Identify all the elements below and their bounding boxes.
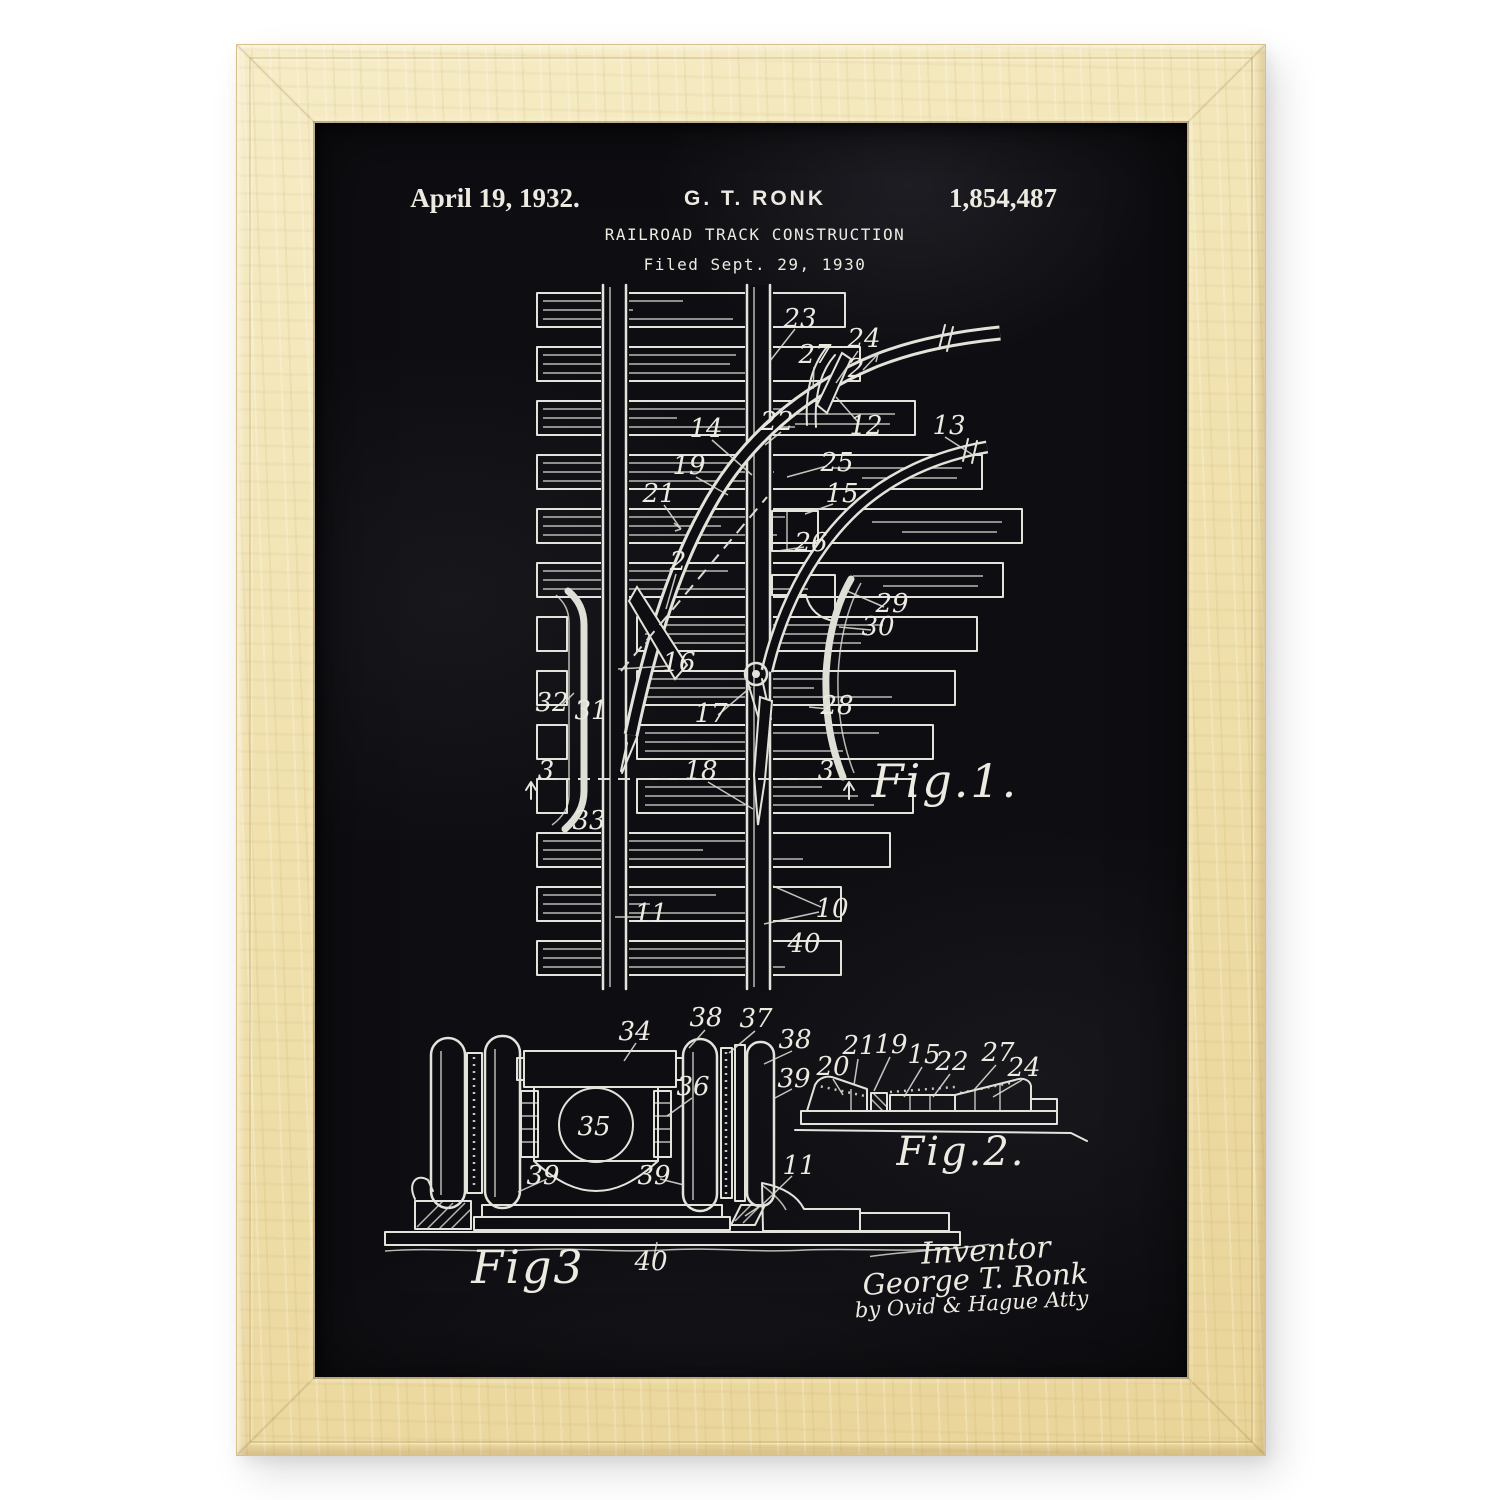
frame-miter-top-right [1187,45,1265,123]
patent-date: April 19, 1932. [410,183,580,213]
fig1-part-label: 2 [847,354,865,384]
fig1-part-label: 24 [846,324,880,354]
fig1-part-label: 2 [669,547,687,577]
fig1-part-label: 10 [815,894,848,924]
fig2-part-label: 19 [874,1030,907,1060]
fig3-part-label: 35 [577,1112,610,1142]
fig1-part-label: 27 [797,340,832,370]
signature-block: Inventor George T. Ronk by Ovid & Hague … [851,1228,1090,1322]
fig1-part-label: 28 [819,691,853,721]
fig3-part-label: 39 [526,1161,559,1191]
fig2-part-labels: 20211915222724 [815,1030,1040,1083]
filed-date: Filed Sept. 29, 1930 [644,255,867,274]
fig1-part-label: 40 [786,929,820,959]
fig1-part-label: 32 [535,688,568,718]
fig3-part-label: 38 [689,1003,722,1033]
patent-number: 1,854,487 [949,183,1057,213]
fig3-part-label: 37 [739,1004,773,1034]
fig1-part-label: 21 [641,479,675,509]
fig1-curve-guard-rail [826,579,861,777]
patent-title: RAILROAD TRACK CONSTRUCTION [605,225,906,244]
fig3-caption: Fig3 [470,1240,584,1294]
fig1-part-label: 19 [672,451,705,481]
fig1-part-label: 14 [689,414,722,444]
frame-miter-top-left [237,45,315,123]
fig3-part-label: 11 [782,1151,815,1181]
fig3-part-label: 39 [637,1161,670,1191]
fig3-drawing [385,1036,960,1251]
fig3-part-label: 36 [676,1072,709,1102]
fig1-part-label: 16 [662,648,695,678]
fig1-part-label: 25 [819,448,853,478]
fig2-caption: Fig.2. [895,1129,1025,1175]
fig1-part-label: 11 [634,899,667,929]
fig3-part-label: 39 [777,1064,810,1094]
fig1-part-label: 13 [932,411,965,441]
inventor-name: G. T. RONK [684,187,826,210]
fig2-part-label: 21 [841,1031,875,1061]
fig1-caption: Fig.1. [871,754,1019,808]
fig1-part-label: 15 [825,479,858,509]
fig1-part-label: 23 [782,304,816,334]
fig1-part-label: 26 [793,528,827,558]
fig3-part-label: 40 [633,1247,667,1277]
fig1-part-label: 30 [861,612,894,642]
fig1-part-label: 33 [572,806,605,836]
fig3-part-label: 38 [778,1025,811,1055]
fig2-part-label: 22 [934,1047,968,1077]
fig3-part-label: 34 [618,1017,651,1047]
fig1-part-label: 12 [849,411,882,441]
frame-miter-bottom-right [1187,1377,1265,1455]
product-photo: April 19, 1932. G. T. RONK 1,854,487 RAI… [0,0,1500,1500]
frame-miter-bottom-left [237,1377,315,1455]
fig1-part-label: 3 [538,756,555,786]
fig2-part-label: 24 [1006,1053,1040,1083]
fig1-part-label: 31 [574,696,607,726]
fig1-straight-rails [601,285,773,991]
fig1-part-label: 17 [694,699,728,729]
fig1-part-label: 3 [818,756,835,786]
fig1-part-label: 22 [759,407,793,437]
patent-drawing: April 19, 1932. G. T. RONK 1,854,487 RAI… [315,123,1187,1377]
fig1-part-label: 18 [684,756,717,786]
patent-poster: April 19, 1932. G. T. RONK 1,854,487 RAI… [315,123,1187,1377]
picture-frame: April 19, 1932. G. T. RONK 1,854,487 RAI… [237,45,1265,1455]
